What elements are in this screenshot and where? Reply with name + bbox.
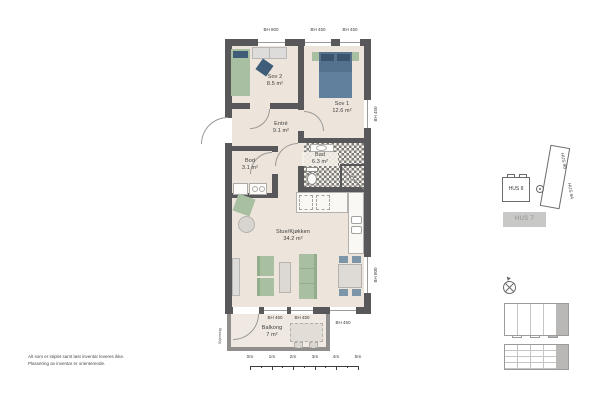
kitchen-appliance-2 xyxy=(316,195,330,210)
window-right-lower xyxy=(364,257,371,293)
window-top-3 xyxy=(340,39,360,46)
bh-label-right-lower: BH 800 xyxy=(374,257,379,293)
room-area: 34.2 m² xyxy=(263,236,323,243)
scale-tick-label: 3m xyxy=(308,355,322,360)
scale-subtick xyxy=(282,366,283,368)
scale-tick xyxy=(250,366,251,370)
balcony-door-opening xyxy=(233,307,259,314)
room-name: Bod xyxy=(230,158,270,165)
room-label-stue: Stue/Kjøkken 34.2 m² xyxy=(263,229,323,243)
round-table xyxy=(238,216,255,233)
site-label-hus8: HUS 8 xyxy=(502,186,530,192)
site-building-hus9 xyxy=(540,145,570,210)
bh-label-bottom-2: BH 450 xyxy=(288,316,316,321)
room-name: Entré xyxy=(261,121,301,128)
room-name: Sov 1 xyxy=(322,101,362,108)
scale-subtick xyxy=(304,366,305,368)
room-label-bad: Bad 6.3 m² xyxy=(302,152,338,166)
wall-bottom-seg5 xyxy=(356,307,371,314)
room-area: 9.1 m² xyxy=(261,128,301,135)
disclaimer: Alt som er stiplet samt løst inventar le… xyxy=(28,354,188,368)
scale-tick-label: 5m xyxy=(351,355,365,360)
balcony-wall-left xyxy=(227,314,231,351)
keyplan-floor-highlight xyxy=(556,304,568,335)
scale-subtick xyxy=(347,366,348,368)
balcony-chair-2 xyxy=(309,342,318,348)
wall-divider-a xyxy=(298,46,304,110)
keyplan-balcony-tab-2 xyxy=(530,335,540,338)
keyplan-balcony-tab-3 xyxy=(548,335,558,338)
disclaimer-line-1: Alt som er stiplet samt løst inventar le… xyxy=(28,354,188,361)
room-area: 3.1 m² xyxy=(230,165,270,172)
balcony-wall-right xyxy=(326,314,330,351)
room-area: 6.3 m² xyxy=(302,159,338,166)
entry-door-arc xyxy=(201,117,228,144)
bed-sov2-pillow xyxy=(233,51,248,58)
room-name: Sov 2 xyxy=(257,74,293,81)
scale-tick xyxy=(358,366,359,370)
bh-label-bottom-3: BH 450 xyxy=(329,321,357,326)
dining-chair-2 xyxy=(352,256,361,263)
wall-bottom-seg4 xyxy=(313,307,330,314)
bh-label-bottom-1: BH 450 xyxy=(261,316,289,321)
dining-chair-1 xyxy=(339,256,348,263)
keyplan-balcony-tab-1 xyxy=(512,335,522,338)
site-hus8-tab-2 xyxy=(519,174,527,178)
wall-bottom-seg1 xyxy=(225,307,233,314)
tv-bench xyxy=(232,258,240,296)
dining-chair-3 xyxy=(339,289,348,296)
scale-tick-label: 4m xyxy=(329,355,343,360)
keyplan-elevation-highlight xyxy=(556,345,568,369)
kitchen-sink-1 xyxy=(351,216,362,224)
window-top-2 xyxy=(305,39,331,46)
bh-label-top-3: BH 450 xyxy=(334,28,366,33)
bh-label-right-upper: BH 450 xyxy=(374,100,379,128)
nightstand-right xyxy=(352,52,359,61)
bed-sov1-pillow-2 xyxy=(337,54,350,61)
dining-table xyxy=(338,264,362,288)
window-bottom-2 xyxy=(291,307,313,314)
room-label-balkong: Balkong 7 m² xyxy=(252,325,292,339)
scale-tick xyxy=(336,366,337,370)
scale-tick-label: 2m xyxy=(286,355,300,360)
sofa xyxy=(299,254,317,299)
wall-bod-right-b xyxy=(272,174,278,193)
dining-chair-4 xyxy=(352,289,361,296)
sun-symbol-dot xyxy=(539,188,541,190)
window-top-1 xyxy=(258,39,285,46)
scale-tick xyxy=(272,366,273,370)
scale-bar: 0m 1m 2m 3m 4m 5m xyxy=(248,355,362,373)
wardrobe-sov2 xyxy=(252,47,287,59)
scale-tick-label: 0m xyxy=(243,355,257,360)
balcony-table xyxy=(290,323,323,342)
scale-tick xyxy=(293,366,294,370)
wall-sov2-bottom-b xyxy=(270,103,298,109)
window-bottom-1 xyxy=(264,307,287,314)
site-label-hus9a: HUS 9A xyxy=(566,178,575,204)
room-area: 12.6 m² xyxy=(322,108,362,115)
compass-north-arrow xyxy=(505,275,511,281)
room-label-bod: Bod 3.1 m² xyxy=(230,158,270,172)
site-hus8-tab-1 xyxy=(507,174,515,178)
room-label-entre: Entré 9.1 m² xyxy=(261,121,301,135)
bh-label-top-2: BH 450 xyxy=(302,28,334,33)
balcony-chair-1 xyxy=(294,342,303,348)
room-name: Stue/Kjøkken xyxy=(263,229,323,236)
room-label-sov1: Sov 1 12.6 m² xyxy=(322,101,362,115)
wall-bod-right-a xyxy=(272,146,278,152)
window-bottom-3 xyxy=(330,307,356,314)
washbasin-bowl xyxy=(316,145,327,151)
bed-sov1-pillow-1 xyxy=(321,54,334,61)
wall-sov2-bottom-a xyxy=(232,103,250,109)
coffee-table xyxy=(279,262,291,293)
floorplan-canvas: Skjerming Sov 2 8.5 m² Sov 1 12.6 m² Ent… xyxy=(0,0,600,400)
scale-tick xyxy=(315,366,316,370)
kitchen-appliance-1 xyxy=(299,195,313,210)
armchair-1 xyxy=(257,256,274,276)
site-label-hus7: HUS 7 xyxy=(503,216,546,222)
shower-drain xyxy=(350,176,354,180)
kitchen-sink-2 xyxy=(351,226,362,234)
disclaimer-line-2: Plassering av inventar er orienterende. xyxy=(28,361,188,368)
toilet-tank xyxy=(306,167,318,172)
scale-subtick xyxy=(261,366,262,368)
scale-tick-label: 1m xyxy=(265,355,279,360)
nightstand-left xyxy=(312,52,319,61)
washer-drum-1 xyxy=(252,186,258,192)
washer-drum-2 xyxy=(259,186,265,192)
room-label-sov2: Sov 2 8.5 m² xyxy=(257,74,293,88)
room-area: 7 m² xyxy=(252,332,292,339)
toilet-bowl xyxy=(307,173,317,185)
screen-label: Skjerming xyxy=(218,316,222,344)
bh-label-top-1: BH 800 xyxy=(255,28,287,33)
bed-sov1-blanket xyxy=(319,72,352,98)
room-name: Bad xyxy=(302,152,338,159)
room-name: Balkong xyxy=(252,325,292,332)
scale-subtick xyxy=(325,366,326,368)
armchair-2 xyxy=(257,278,274,296)
window-right-upper xyxy=(364,100,371,128)
room-area: 8.5 m² xyxy=(257,81,293,88)
